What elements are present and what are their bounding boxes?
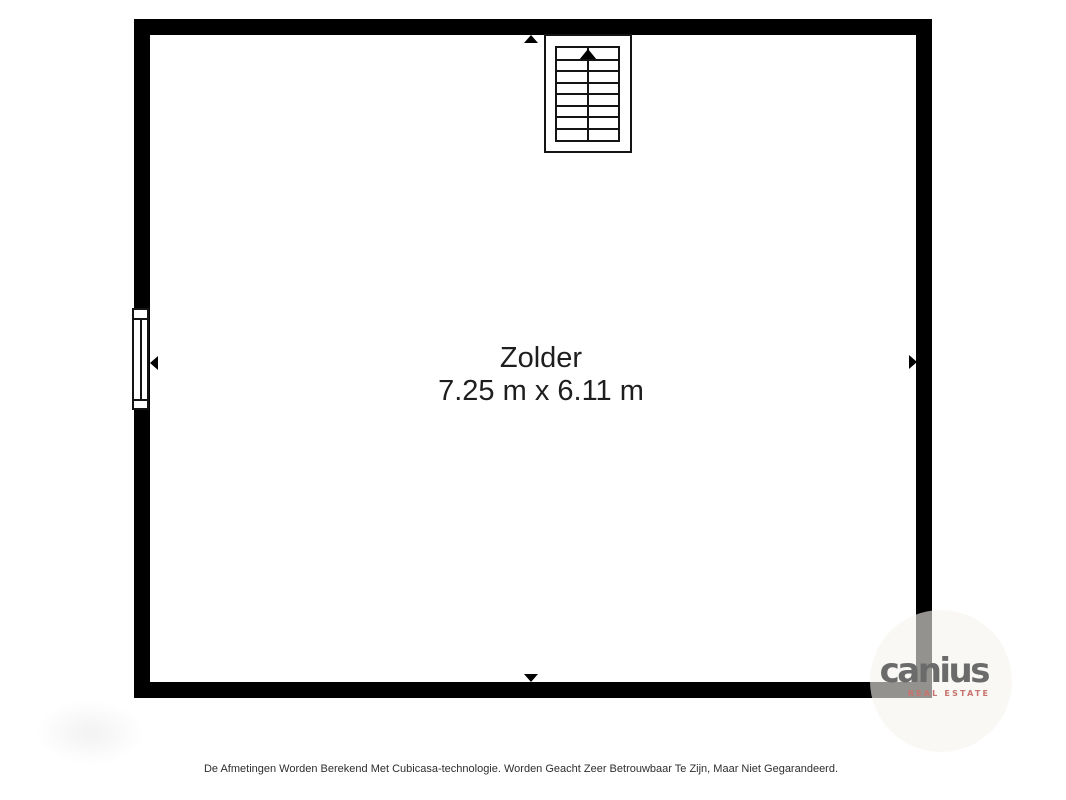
floorplan-canvas: Zolder 7.25 m x 6.11 m canius REAL ESTAT… [0,0,1066,800]
stair-tread-line [557,116,618,118]
window-frame-bottom [134,399,147,408]
staircase-treads [555,46,620,142]
window-glass-line [140,320,142,399]
brand-name: canius [880,655,988,687]
window-frame-top [134,310,147,320]
room-label: Zolder 7.25 m x 6.11 m [438,342,644,408]
room-name: Zolder [438,342,644,375]
wall-arrow-down-icon [524,674,538,682]
wall-arrow-right-icon [909,355,917,369]
watermark-smudge [35,700,145,765]
brand-tagline: REAL ESTATE [908,689,990,698]
brand-logo: canius REAL ESTATE [880,655,988,698]
stair-tread-line [557,128,618,130]
stair-tread-line [557,105,618,107]
wall-arrow-left-icon [150,356,158,370]
stair-tread-line [557,93,618,95]
wall-arrow-up-icon [524,35,538,43]
stair-tread-line [557,82,618,84]
stair-tread-line [557,70,618,72]
disclaimer-text: De Afmetingen Worden Berekend Met Cubica… [204,763,838,775]
window [132,308,149,410]
room-dimensions: 7.25 m x 6.11 m [438,375,644,408]
stair-tread-line [557,59,618,61]
